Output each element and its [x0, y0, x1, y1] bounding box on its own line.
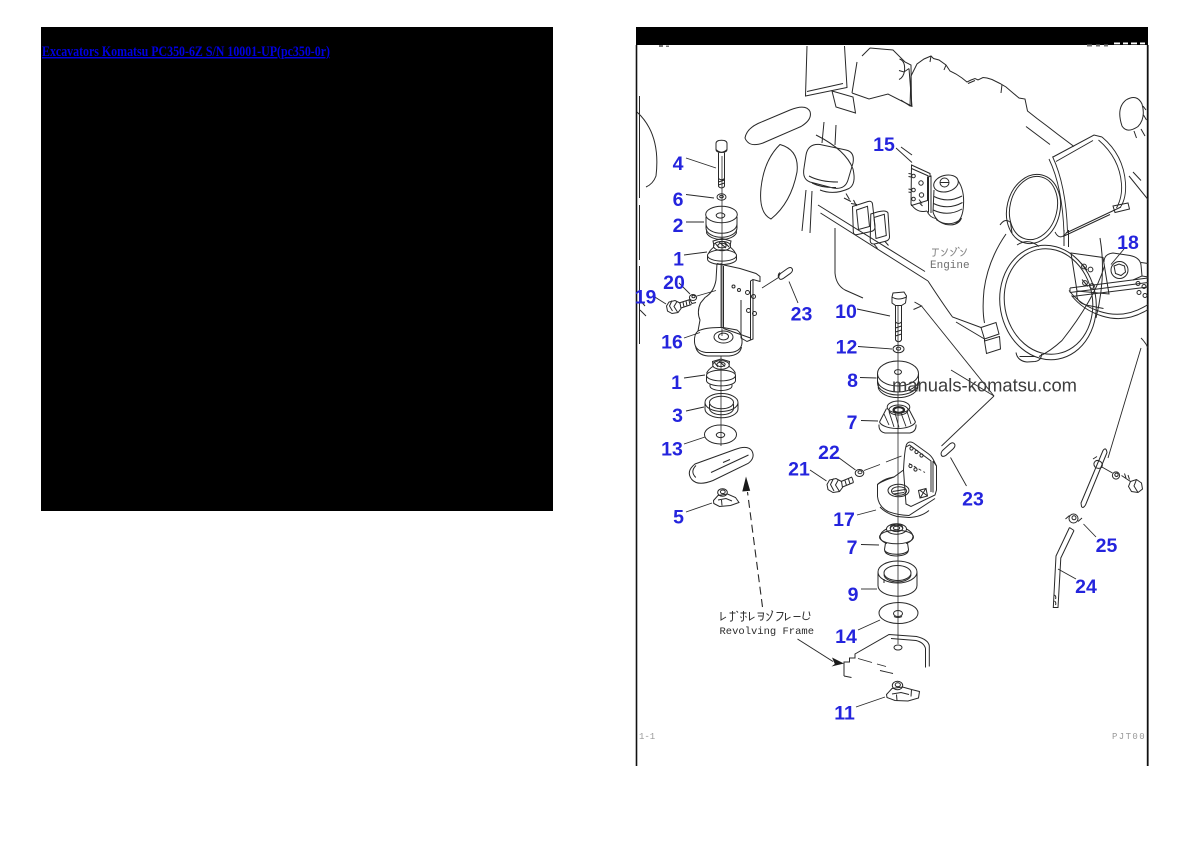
svg-text:16: 16: [661, 332, 683, 354]
svg-text:22: 22: [818, 442, 840, 464]
svg-text:8: 8: [847, 370, 858, 392]
svg-text:4: 4: [673, 153, 684, 175]
svg-text:manuals-komatsu.com: manuals-komatsu.com: [892, 375, 1077, 396]
svg-text:Engine: Engine: [930, 260, 970, 272]
svg-text:25: 25: [1096, 535, 1118, 557]
svg-text:5: 5: [673, 507, 684, 529]
svg-text:7: 7: [847, 537, 858, 559]
svg-text:10: 10: [835, 301, 857, 323]
svg-text:6: 6: [673, 189, 684, 211]
svg-text:20: 20: [663, 272, 685, 294]
svg-text:13: 13: [661, 439, 683, 461]
svg-text:1: 1: [673, 249, 684, 271]
svg-text:9: 9: [848, 584, 859, 606]
svg-text:PJT00: PJT00: [1112, 732, 1146, 742]
svg-text:21: 21: [788, 459, 810, 481]
svg-text:19: 19: [635, 287, 657, 309]
svg-text:Revolving Frame: Revolving Frame: [720, 626, 815, 638]
svg-text:14: 14: [835, 626, 857, 648]
svg-text:15: 15: [873, 134, 895, 156]
svg-text:Excavators Komatsu PC350-6Z S/: Excavators Komatsu PC350-6Z S/N 10001-UP…: [42, 44, 330, 60]
svg-text:1: 1: [671, 372, 682, 394]
svg-text:7: 7: [847, 412, 858, 434]
svg-text:17: 17: [833, 509, 855, 531]
svg-text:1-1: 1-1: [639, 732, 655, 742]
svg-text:2: 2: [673, 215, 684, 237]
svg-text:12: 12: [836, 337, 858, 359]
svg-text:11: 11: [834, 703, 855, 725]
svg-text:18: 18: [1117, 232, 1139, 254]
svg-text:23: 23: [962, 489, 984, 511]
svg-text:3: 3: [672, 405, 683, 427]
svg-text:23: 23: [791, 304, 813, 326]
svg-text:24: 24: [1075, 576, 1097, 598]
